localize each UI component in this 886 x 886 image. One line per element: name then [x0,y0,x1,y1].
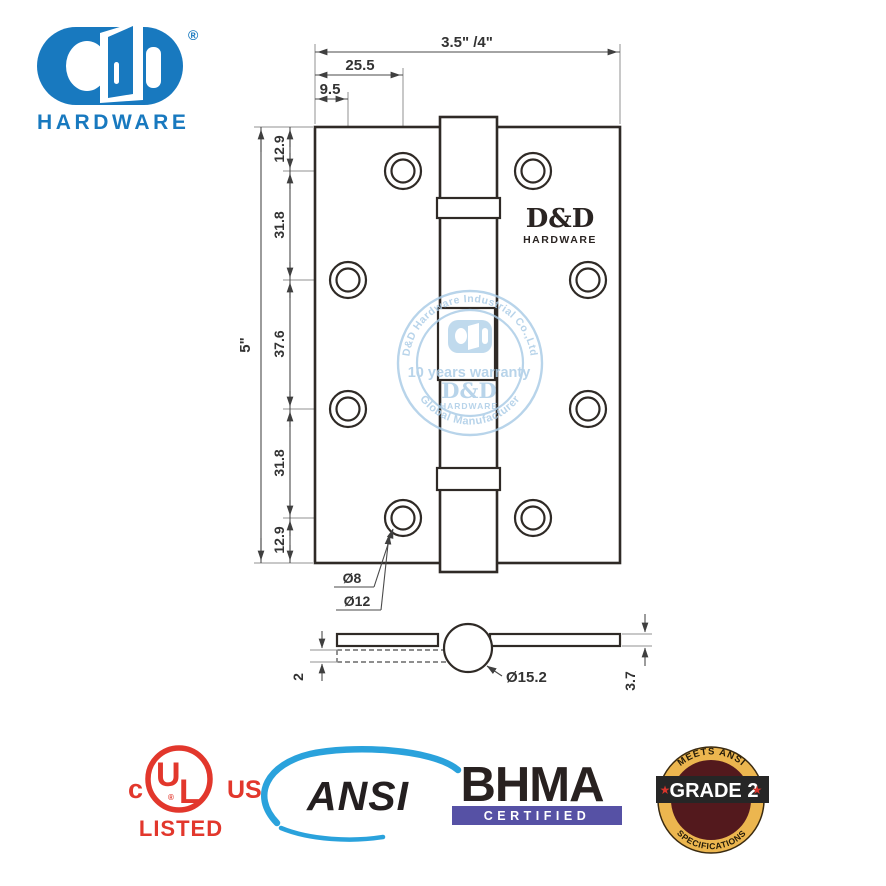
ul-c-text: c [128,774,143,804]
watermark-logo-icon [448,320,492,353]
section-gap-label: 3.7 [622,671,638,691]
ul-listed-text: LISTED [139,816,223,841]
ul-letter-l: L [179,773,200,811]
dim-seg2-label: 31.8 [271,211,287,238]
screw-hole [385,153,421,189]
plate-brand-sub-text: HARDWARE [523,234,597,246]
logo-registered-mark: ® [188,27,199,43]
watermark-brand-sub-text: HARDWARE [440,401,498,411]
hinge-section-view: 2 Ø15.2 3.7 [290,614,652,691]
logo-hardware-text: HARDWARE [37,111,189,134]
bhma-certified-text: CERTIFIED [484,809,590,823]
hole-inner-dia-label: Ø8 [343,570,362,586]
dim-seg1-label: 12.9 [271,135,287,162]
ansi-logo: ANSI [264,749,458,839]
bhma-logo: BHMA CERTIFIED [452,758,622,825]
section-right-leaf [490,634,620,646]
screw-hole [385,500,421,536]
dd-hardware-logo: ® HARDWARE [37,20,199,134]
grade2-star-left-icon: ★ [660,783,671,797]
ul-listed-logo: U L ® c US LISTED [128,748,262,841]
dim-seg3-label: 37.6 [271,330,287,357]
section-thickness-dim: 2 [290,631,338,681]
screw-hole [515,153,551,189]
dim-seg4-label: 31.8 [271,449,287,476]
watermark-brand-text: D&D [441,378,496,403]
screw-hole [330,262,366,298]
dd-door-logo-icon [37,20,183,105]
plate-brand-text: D&D [526,204,595,234]
screw-hole [515,500,551,536]
hole-outer-dia-label: Ø12 [344,593,371,609]
ul-us-text: US [227,776,262,804]
bhma-text: BHMA [461,758,605,812]
section-hidden-lines [337,650,455,662]
dim-25-5-label: 25.5 [345,57,374,74]
dim-seg5-label: 12.9 [271,526,287,553]
ul-letter-u: U [156,756,181,794]
dim-height-label: 5" [237,337,254,352]
grade2-band-text: GRADE 2 [670,780,759,802]
screw-hole [570,262,606,298]
grade2-star-right-icon: ★ [752,783,763,797]
dim-9-5-label: 9.5 [320,81,341,98]
ul-registered-mark: ® [168,793,174,802]
section-knuckle-circle [444,624,492,672]
grade2-badge: MEETS ANSI GRADE 2 ★ ★ SPECIFICATIONS [656,746,769,853]
dim-width-label: 3.5" /4" [441,34,493,51]
section-thickness-label: 2 [290,673,306,681]
screw-hole [570,391,606,427]
knuckle-dia-label: Ø15.2 [506,669,547,686]
screw-hole [330,391,366,427]
section-gap-dim: 3.7 [622,614,652,691]
section-left-leaf [337,634,438,646]
ansi-swoosh-bottom-icon [281,828,383,840]
certification-row: U L ® c US LISTED ANSI BHMA CERTIFIED ME… [128,746,769,853]
ansi-text: ANSI [306,773,410,819]
hinge-spec-sheet: ® HARDWARE [0,0,886,886]
knuckle-dia-leader [487,666,502,676]
